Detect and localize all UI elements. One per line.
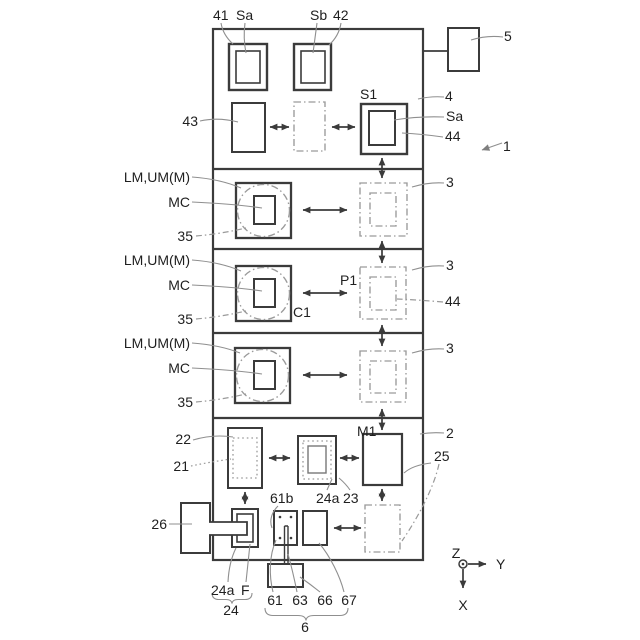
label-44-mid: 44 — [445, 293, 461, 309]
label-22: 22 — [175, 431, 191, 447]
dot-61b-1 — [279, 516, 282, 519]
label-c1: C1 — [293, 304, 311, 320]
label-24a-bottom: 24a — [211, 582, 235, 598]
label-s1: S1 — [360, 86, 377, 102]
box-26 — [181, 503, 210, 553]
label-sb: Sb — [310, 7, 327, 23]
label-63: 63 — [292, 592, 308, 608]
label-23: 23 — [343, 490, 359, 506]
label-lm-2: LM,UM(M) — [124, 252, 190, 268]
label-67: 67 — [341, 592, 357, 608]
box-43 — [232, 103, 265, 152]
box-22 — [228, 428, 262, 488]
box-23 — [298, 436, 336, 484]
label-axis-z: Z — [452, 545, 461, 561]
dot-61b-3 — [279, 537, 282, 540]
label-42: 42 — [333, 7, 349, 23]
label-mc-3: MC — [168, 360, 190, 376]
label-f: F — [241, 582, 250, 598]
label-3-3: 3 — [446, 340, 454, 356]
label-sa-left: Sa — [236, 7, 253, 23]
label-3-2: 3 — [446, 257, 454, 273]
label-35-2: 35 — [177, 311, 193, 327]
label-3-1: 3 — [446, 174, 454, 190]
label-66: 66 — [317, 592, 333, 608]
label-35-1: 35 — [177, 228, 193, 244]
label-41: 41 — [213, 7, 229, 23]
box-66 — [268, 564, 303, 587]
label-24a-top: 24a — [316, 490, 340, 506]
label-m1: M1 — [357, 423, 377, 439]
label-axis-x: X — [458, 597, 468, 613]
box-m1 — [363, 434, 402, 485]
label-21: 21 — [173, 458, 189, 474]
label-p1: P1 — [340, 272, 357, 288]
label-43: 43 — [182, 113, 198, 129]
fork-arm-24 — [209, 522, 247, 535]
label-1: 1 — [503, 138, 511, 154]
label-lm-3: LM,UM(M) — [124, 335, 190, 351]
dot-61b-4 — [290, 537, 293, 540]
diagram-canvas: 41 Sa Sb 42 5 43 S1 4 Sa 44 1 — [0, 0, 640, 640]
label-61: 61 — [267, 592, 283, 608]
box-67 — [303, 511, 327, 545]
label-6: 6 — [301, 619, 309, 635]
label-sa-right: Sa — [446, 108, 463, 124]
box-5 — [448, 28, 479, 71]
label-26: 26 — [151, 516, 167, 532]
box-61b — [274, 511, 297, 545]
label-mc-2: MC — [168, 277, 190, 293]
label-25: 25 — [434, 448, 450, 464]
label-61b: 61b — [270, 490, 294, 506]
label-35-3: 35 — [177, 394, 193, 410]
module-inner-1 — [254, 196, 275, 224]
axis-indicator: Z Y X — [452, 545, 506, 613]
label-lm-1: LM,UM(M) — [124, 169, 190, 185]
label-4: 4 — [445, 88, 453, 104]
label-24: 24 — [223, 602, 239, 618]
label-mc-1: MC — [168, 194, 190, 210]
label-44-top: 44 — [445, 128, 461, 144]
label-2: 2 — [446, 425, 454, 441]
label-axis-y: Y — [496, 556, 506, 572]
module-inner-3 — [254, 361, 275, 389]
module-inner-2 — [254, 279, 275, 307]
label-5: 5 — [504, 28, 512, 44]
axis-origin-dot-icon — [462, 563, 465, 566]
patent-figure: 41 Sa Sb 42 5 43 S1 4 Sa 44 1 — [0, 0, 640, 640]
dot-61b-2 — [290, 516, 293, 519]
pointer-1 — [482, 143, 502, 150]
